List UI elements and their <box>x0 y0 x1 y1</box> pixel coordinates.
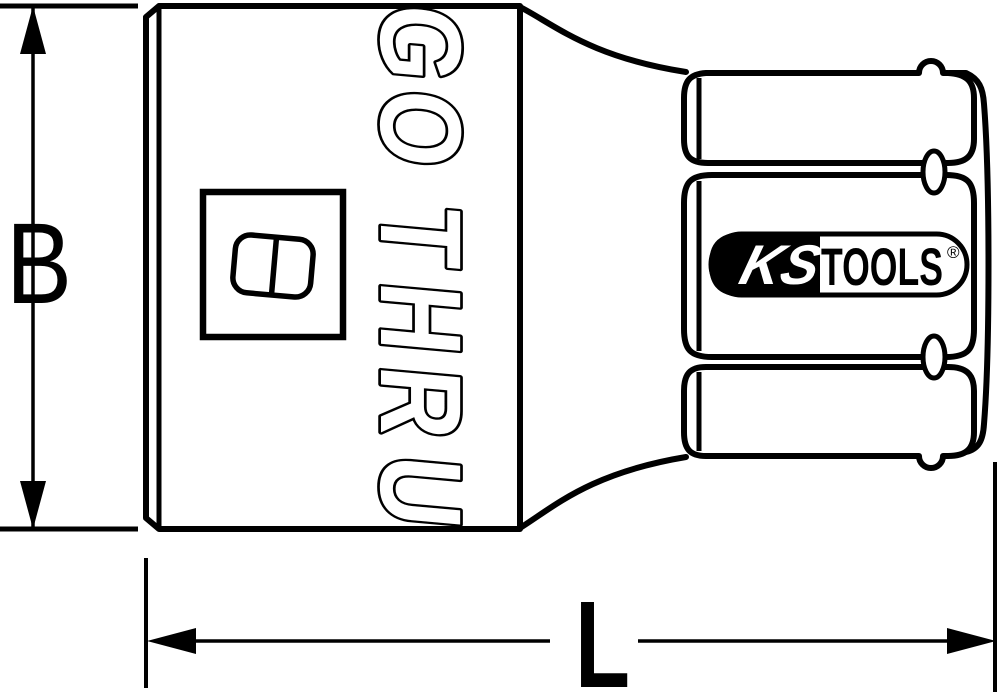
detent-ball-bottom <box>923 336 945 378</box>
engraving-letter-u: U <box>356 450 485 532</box>
engraving-letter-h: H <box>356 277 485 359</box>
dimension-b-arrow-up <box>20 6 46 54</box>
dimension-b-arrow-down <box>20 481 46 529</box>
engraving-letter-o: O <box>356 85 485 173</box>
dimension-b-label: B <box>6 200 72 328</box>
neck-top-curve <box>520 7 686 72</box>
socket-technical-drawing: B G O T H R U <box>0 0 1000 696</box>
engraving-letter-r: R <box>356 361 485 443</box>
drawing-canvas: B G O T H R U <box>0 0 1000 696</box>
dimension-l-arrow-left <box>147 628 196 654</box>
socket-neck <box>520 7 686 528</box>
neck-bottom-curve <box>520 457 686 528</box>
engraving-letter-t: T <box>356 201 485 272</box>
head-facet-bottom <box>684 367 974 468</box>
logo-tools-text: TOOLS <box>821 238 943 297</box>
drive-square-hole <box>232 234 315 299</box>
logo-registered-mark: ® <box>947 243 960 262</box>
dimension-l-arrow-right <box>947 628 996 654</box>
dimension-b: B <box>0 6 138 529</box>
detent-ball-top <box>923 151 945 193</box>
dimension-l-label: L <box>575 577 630 696</box>
engraving-letter-g: G <box>356 0 485 87</box>
head-facet-top <box>684 61 974 163</box>
ks-tools-logo: KS TOOLS ® <box>711 234 967 297</box>
